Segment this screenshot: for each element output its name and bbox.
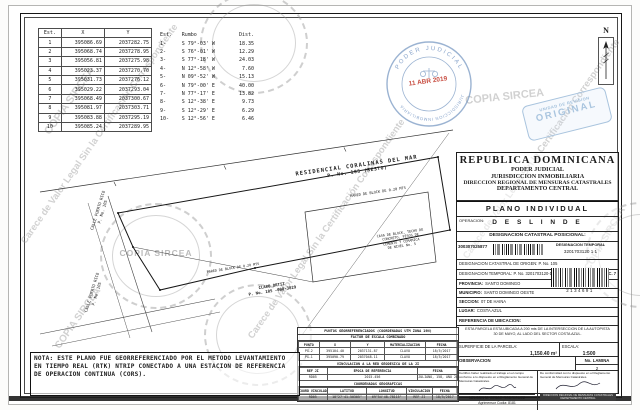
certification-text: Certifico haber realizado el trabajo en … xyxy=(459,372,535,383)
table-cell: 18°27'41.50305" xyxy=(327,394,367,400)
sheet-number-cell: No. LAMINA 2 xyxy=(576,357,618,370)
table-cell: 2037048.11 xyxy=(351,354,384,360)
table-row: 8395081.972037303.71 xyxy=(39,104,152,113)
table-cell: 2037293.04 xyxy=(104,85,151,94)
title-block-header: REPUBLICA DOMINICANA PODER JUDICIAL JURI… xyxy=(457,153,618,201)
table-cell: S 12°-56' E xyxy=(180,115,230,123)
director-certification: De conformidad con lo dispuesto en el Re… xyxy=(538,371,618,410)
table-cell: 395029.22 xyxy=(61,85,104,94)
table-cell: 9 xyxy=(39,113,62,122)
table-row: 4395023.372037270.70 xyxy=(39,66,152,75)
area-scale-row: SUPERFICIE DE LA PARCELA: 1,150.40 m² ES… xyxy=(457,343,618,357)
dcp-header: DESIGNACION CATASTRAL POSICIONAL: xyxy=(457,232,618,242)
surveyor-code: Agrimensor Codia: 8181 xyxy=(459,401,535,405)
table-row: 8-S 12°-38' E9.73 xyxy=(158,98,256,106)
table-cell: 1 xyxy=(39,38,62,47)
table-header-row: Est. Rumbo Dist. xyxy=(158,31,256,39)
table-cell: 395056.81 xyxy=(61,57,104,66)
table-cell: 2015.456 xyxy=(327,374,418,380)
table-row: 2-S 76°-01' W12.29 xyxy=(158,48,256,56)
reference-header: REFERENCIA DE UBICACION: xyxy=(457,317,618,327)
col-header-dist: Dist. xyxy=(230,31,256,39)
table-row: 7-N 77°-17' E13.82 xyxy=(158,90,256,98)
table-row: 6395029.222037293.04 xyxy=(39,85,152,94)
dt-label: DESIGNACION TEMPORAL xyxy=(545,243,616,247)
georef-subtitle: FACTOR DE ESCALA COMBINADO xyxy=(298,335,458,342)
table-cell: 7 xyxy=(39,94,62,103)
table-cell: 6.29 xyxy=(230,107,256,115)
lugar-label: LUGAR: xyxy=(459,308,475,313)
table-cell: 2037300.67 xyxy=(104,94,151,103)
table-cell: 2037278.95 xyxy=(104,47,151,56)
table-cell: PG-1 xyxy=(299,354,320,360)
georeference-note: NOTA: ESTE PLANO FUE GEORREFERENCIADO PO… xyxy=(30,352,300,396)
table-cell: 5- xyxy=(158,73,180,81)
georeference-table: PUNTOS GEORREFERENCIADOS (COORDENADAS UT… xyxy=(297,327,459,402)
north-indicator: N xyxy=(592,26,620,85)
table-row: 1-S 79°-03' W18.35 xyxy=(158,39,256,47)
table-cell: 7- xyxy=(158,90,180,98)
area-label: SUPERFICIE DE LA PARCELA: xyxy=(459,344,517,349)
provincia-value: SANTO DOMINGO xyxy=(485,281,520,286)
north-arrow-icon xyxy=(598,37,614,85)
scale-cell: ESCALA: 1:500 xyxy=(560,343,618,356)
table-cell: 2037282.75 xyxy=(104,38,151,47)
seccion-value: 07 DE HAINA xyxy=(481,299,506,304)
table-row: 10395085.242037289.95 xyxy=(39,122,152,131)
table-cell: 2037276.12 xyxy=(104,75,151,84)
table-cell: 2- xyxy=(158,48,180,56)
provincia-label: PROVINCIA: xyxy=(459,281,483,286)
col-header-y: Y xyxy=(104,29,151,38)
street-line-left-1 xyxy=(108,196,152,332)
table-cell: 13.82 xyxy=(230,90,256,98)
table-cell: 8 xyxy=(39,104,62,113)
title-block: REPUBLICA DOMINICANA PODER JUDICIAL JURI… xyxy=(456,152,619,394)
area-cell: SUPERFICIE DE LA PARCELA: 1,150.40 m² xyxy=(457,343,560,356)
table-cell: 2037289.95 xyxy=(104,122,151,131)
seccion-row: SECCION:07 DE HAINA xyxy=(457,298,618,307)
division-wall-line xyxy=(133,247,313,282)
table-row: 9-S 12°-29' E6.29 xyxy=(158,107,256,115)
table-cell: 395086.69 xyxy=(61,38,104,47)
observation-label: OBSERVACION xyxy=(457,357,576,370)
col-header-est: Est. xyxy=(158,31,180,39)
table-row: 4-N 12°-58' W7.60 xyxy=(158,65,256,73)
table-cell: 2037303.71 xyxy=(104,104,151,113)
dcp-row: 300307025877 DESIGNACION TEMPORAL 320170… xyxy=(457,242,618,260)
table-cell: 395031.73 xyxy=(61,75,104,84)
table-cell: 9- xyxy=(158,107,180,115)
scanned-cadastral-plan: COPIA SIRCEA Carece de Valor Legal Sin l… xyxy=(0,0,640,410)
operation-label: OPERACION: xyxy=(459,218,484,223)
departamento: DEPARTAMENTO CENTRAL xyxy=(457,186,618,192)
table-row: RD052015.456JULIANO, 158, AÑO 2015 xyxy=(299,374,458,380)
table-row: 10-S 12°-56' E6.46 xyxy=(158,115,256,123)
barcode-number: 2134691 xyxy=(551,288,609,293)
table-cell: REF JI xyxy=(407,394,432,400)
table-row: 1395086.692037282.75 xyxy=(39,38,152,47)
stamp-arc-text: JURISDICCION INMOBILIARIA xyxy=(399,94,465,122)
table-cell: 395068.49 xyxy=(61,94,104,103)
table-cell: 395081.97 xyxy=(61,104,104,113)
table-cell: S 77°-18' W xyxy=(180,56,230,64)
table-row: 2395068.742037278.95 xyxy=(39,47,152,56)
temporal-text: DESIGNACION TEMPORAL: P. No. 3201703120-… xyxy=(459,271,556,276)
table-cell: 6.46 xyxy=(230,115,256,123)
table-cell: 2 xyxy=(39,47,62,56)
table-row: RD0518°27'41.50305"69°54'48.78115"REF JI… xyxy=(299,394,458,400)
certification-text: De conformidad con lo dispuesto en el Re… xyxy=(540,372,616,379)
table-cell: 3 xyxy=(39,57,62,66)
col-header-est: Est. xyxy=(39,29,62,38)
barcode-icon xyxy=(493,244,543,255)
jurisdiccion: JURISDICCION INMOBILIARIA xyxy=(457,173,618,180)
table-row: 7395068.492037300.67 xyxy=(39,94,152,103)
stamp-line: DEPARTAMENTO CENTRAL xyxy=(541,397,615,400)
table-cell: 18/5/2017 xyxy=(432,394,457,400)
table-cell: RD05 xyxy=(299,394,328,400)
table-row: 5-N 09°-52' W15.13 xyxy=(158,73,256,81)
director-stamp: DIRECCION REGIONAL DE MENSURAS CATASTRAL… xyxy=(540,393,616,402)
table-row: 3395056.812037275.98 xyxy=(39,57,152,66)
seccion-label: SECCION: xyxy=(459,299,479,304)
dcp-number: 300307025877 xyxy=(457,242,493,259)
table-cell: 5 xyxy=(39,75,62,84)
table-cell: 12.29 xyxy=(230,48,256,56)
table-cell: 6- xyxy=(158,81,180,89)
signature-scribble xyxy=(477,383,517,393)
table-row: 5395031.732037276.12 xyxy=(39,75,152,84)
table-cell: 4 xyxy=(39,66,62,75)
coordinates-table: Est. X Y 1395086.692037282.752395068.742… xyxy=(38,28,152,132)
geographic-title: COORDENADAS GEOGRAFICAS xyxy=(298,381,458,388)
surveyor-name: NELSON M. CESAR RODRIGUEZ xyxy=(459,394,535,400)
vinculacion-table: REF JI EPOCA DE REFERENCIA FECHA RD05201… xyxy=(298,367,458,380)
table-cell: 395023.37 xyxy=(61,66,104,75)
table-cell: N 12°-58' W xyxy=(180,65,230,73)
table-cell: 6 xyxy=(39,85,62,94)
scale-label: ESCALA: xyxy=(562,344,579,349)
vinculacion-title: VINCULACION A LA RED GEODESICA DE LA JI xyxy=(298,361,458,368)
utm-points-table: PUNTO X Y MATERIALIZACION FECHA PG-23951… xyxy=(298,341,458,361)
geographic-coords-table: COORD VINCULADA LATITUD LONGITUD VINCULA… xyxy=(298,387,458,400)
table-cell: 2037295.19 xyxy=(104,113,151,122)
table-cell: 395090.79 xyxy=(319,354,351,360)
sheet-number-label: No. LAMINA xyxy=(576,357,618,365)
table-cell: JULIANO, 158, AÑO 2015 xyxy=(418,374,458,380)
table-cell: 395085.24 xyxy=(61,122,104,131)
poder-judicial: PODER JUDICIAL xyxy=(457,166,618,173)
table-cell: S 12°-38' E xyxy=(180,98,230,106)
col-header-x: X xyxy=(61,29,104,38)
municipio-value: SANTO DOMINGO OESTE xyxy=(484,290,534,295)
table-cell: N 77°-17' E xyxy=(180,90,230,98)
table-row: 3-S 77°-18' W24.03 xyxy=(158,56,256,64)
table-cell: 3- xyxy=(158,56,180,64)
table-cell: S 79°-03' W xyxy=(180,39,230,47)
plan-type: PLANO INDIVIDUAL xyxy=(457,201,618,217)
table-cell: 4- xyxy=(158,65,180,73)
surveyor-certification: Certifico haber realizado el trabajo en … xyxy=(457,371,538,410)
table-cell: 2037275.98 xyxy=(104,57,151,66)
country-title: REPUBLICA DOMINICANA xyxy=(457,155,618,166)
bearings-table: Est. Rumbo Dist. 1-S 79°-03' W18.352-S 7… xyxy=(158,31,256,123)
observation-row: OBSERVACION No. LAMINA 2 xyxy=(457,357,618,371)
table-cell: N 09°-52' W xyxy=(180,73,230,81)
signature-scribble xyxy=(553,380,603,392)
table-cell: 18.35 xyxy=(230,39,256,47)
table-cell: 10- xyxy=(158,115,180,123)
table-cell: N 79°-00' E xyxy=(180,81,230,89)
table-cell: 9.73 xyxy=(230,98,256,106)
reference-text: ESTA PARCELA ESTA UBICADA A 200 mts DE L… xyxy=(457,326,618,343)
lugar-row: LUGAR:COSTA AZUL xyxy=(457,308,618,317)
table-cell: 24.03 xyxy=(230,56,256,64)
certification-row: Certifico haber realizado el trabajo en … xyxy=(457,371,618,410)
temporal-designation: DESIGNACION TEMPORAL 3201703120 1 1 xyxy=(543,242,618,259)
table-row: 9395083.882037295.19 xyxy=(39,113,152,122)
georef-title: PUNTOS GEORREFERENCIADOS (COORDENADAS UT… xyxy=(298,328,458,335)
svg-text:JURISDICCION INMOBILIARIA: JURISDICCION INMOBILIARIA xyxy=(399,94,465,122)
table-cell: S 76°-01' W xyxy=(180,48,230,56)
table-cell: RD05 xyxy=(299,374,328,380)
table-cell: 7.60 xyxy=(230,65,256,73)
table-cell: 69°54'48.78115" xyxy=(367,394,407,400)
table-cell: 1- xyxy=(158,39,180,47)
table-row: 6-N 79°-00' E40.00 xyxy=(158,81,256,89)
table-header-row: Est. X Y xyxy=(39,29,152,38)
street-line-bottom-1 xyxy=(40,299,215,334)
table-cell: 18/5/2017 xyxy=(426,354,458,360)
table-cell: S 12°-29' E xyxy=(180,107,230,115)
municipio-label: MUNICIPIO: xyxy=(459,290,482,295)
col-header-rumbo: Rumbo xyxy=(180,31,230,39)
table-cell: 15.13 xyxy=(230,73,256,81)
operation-row: OPERACION: D E S L I N D E xyxy=(457,217,618,232)
table-cell: 40.00 xyxy=(230,81,256,89)
north-letter: N xyxy=(592,26,620,35)
table-cell: 395068.74 xyxy=(61,47,104,56)
table-cell: 2037270.70 xyxy=(104,66,151,75)
table-cell: 10 xyxy=(39,122,62,131)
table-cell: 8- xyxy=(158,98,180,106)
barcode-icon xyxy=(551,268,609,287)
table-cell: 395083.88 xyxy=(61,113,104,122)
table-cell: CLAVO xyxy=(384,354,425,360)
table-row: PG-1395090.792037048.11CLAVO18/5/2017 xyxy=(299,354,458,360)
dt-value: 3201703120 1 1 xyxy=(545,249,616,254)
lugar-value: COSTA AZUL xyxy=(477,308,502,313)
